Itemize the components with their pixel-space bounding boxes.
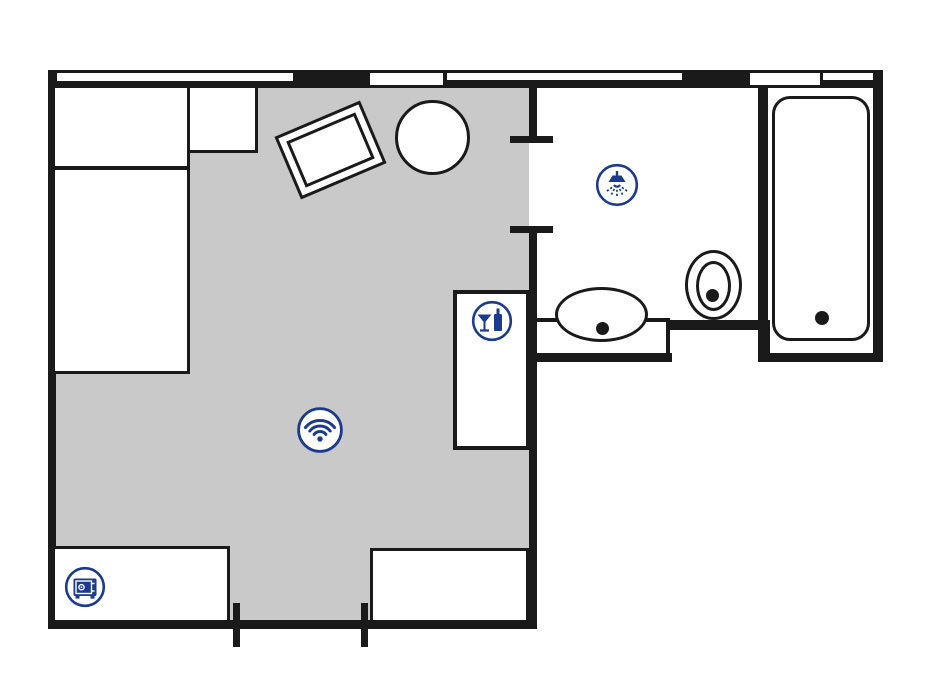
bathtub-drain bbox=[815, 311, 829, 325]
toilet-bowl bbox=[696, 261, 731, 311]
window-2 bbox=[370, 73, 443, 85]
wall-divider-upper bbox=[529, 86, 537, 143]
vanity-counter-side bbox=[666, 318, 670, 356]
wall-bathtub-left bbox=[758, 88, 768, 330]
window-1 bbox=[57, 73, 293, 81]
wall-bathroom-step bbox=[670, 320, 770, 330]
window-3 bbox=[447, 73, 682, 80]
entry-door-jamb-right bbox=[361, 603, 368, 647]
bathtub bbox=[772, 96, 870, 341]
bed bbox=[52, 85, 190, 374]
round-table bbox=[395, 100, 470, 175]
nightstand bbox=[187, 85, 258, 153]
window-5 bbox=[823, 73, 873, 80]
bed-pillow-divider bbox=[52, 166, 190, 170]
window-4 bbox=[750, 73, 820, 85]
wall-bathroom-bottom-left bbox=[537, 353, 672, 362]
minibar-icon bbox=[471, 300, 513, 342]
floor-plan bbox=[0, 0, 933, 700]
wall-right bbox=[873, 70, 883, 362]
wifi-icon bbox=[296, 406, 344, 454]
safe-icon bbox=[64, 566, 106, 608]
entry-door-jamb-left bbox=[233, 603, 240, 647]
wall-bathroom-bottom-right bbox=[758, 353, 883, 362]
bathroom-door-jamb-lower bbox=[510, 226, 553, 233]
wardrobe-right bbox=[370, 548, 529, 623]
wall-divider-lower bbox=[529, 226, 537, 629]
toilet-drain bbox=[706, 289, 719, 302]
bathroom-door-jamb-upper bbox=[510, 136, 553, 143]
sink-drain bbox=[596, 322, 609, 335]
shower-icon bbox=[595, 163, 639, 207]
